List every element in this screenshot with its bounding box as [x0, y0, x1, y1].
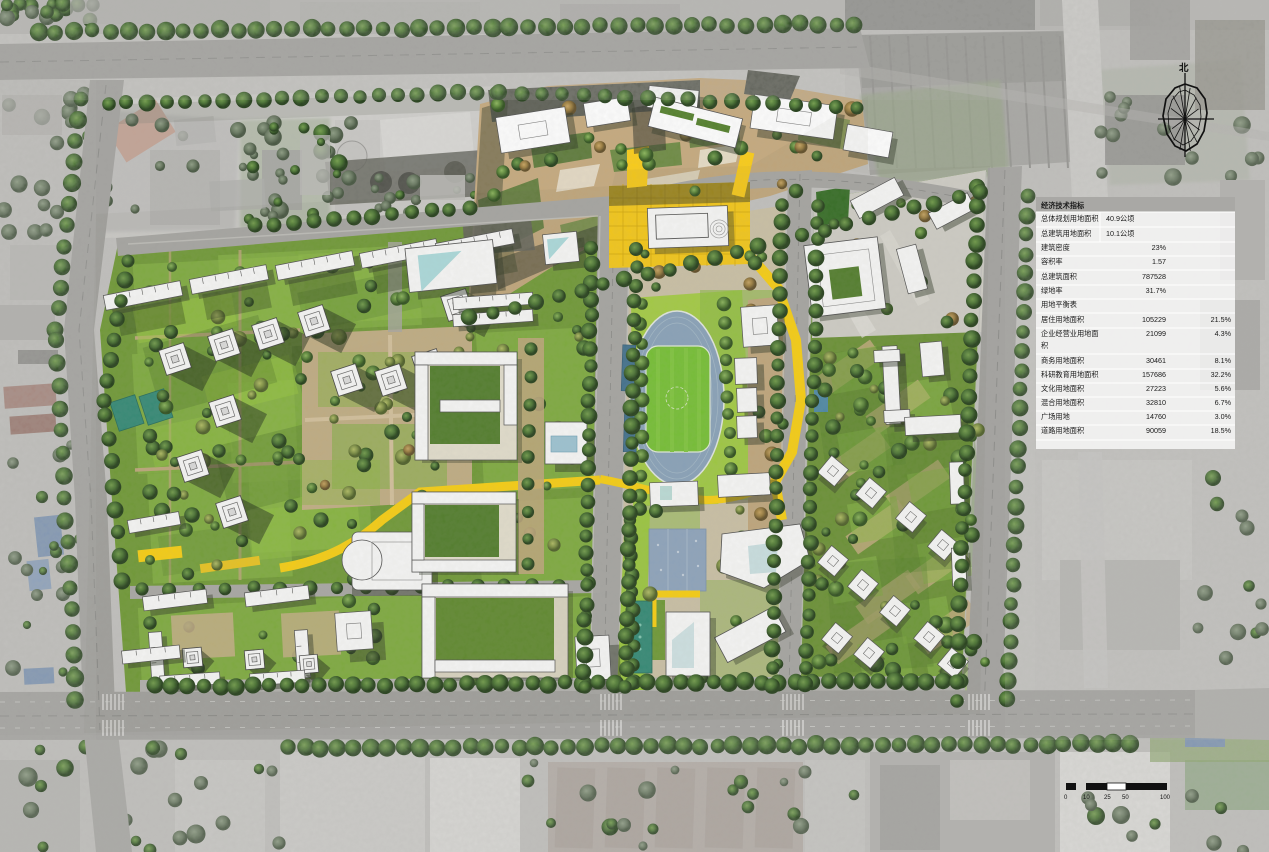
svg-text:科研教育用地面积: 科研教育用地面积	[1041, 370, 1099, 379]
svg-text:27223: 27223	[1146, 384, 1166, 393]
svg-text:混合用地面积: 混合用地面积	[1041, 398, 1084, 407]
svg-text:建筑密度: 建筑密度	[1041, 243, 1070, 252]
svg-text:总体规划用地面积: 总体规划用地面积	[1041, 214, 1099, 223]
svg-text:总建筑用地面积: 总建筑用地面积	[1041, 229, 1091, 238]
svg-text:10: 10	[1083, 795, 1090, 801]
svg-text:1.57: 1.57	[1152, 257, 1166, 266]
svg-text:绿地率: 绿地率	[1041, 286, 1063, 295]
svg-text:企业经营业用地面: 企业经营业用地面	[1041, 329, 1099, 338]
svg-text:道路用地面积: 道路用地面积	[1041, 426, 1084, 435]
svg-text:总建筑面积: 总建筑面积	[1041, 272, 1077, 281]
svg-text:23%: 23%	[1152, 243, 1167, 252]
svg-text:北: 北	[1179, 62, 1189, 74]
svg-text:6.7%: 6.7%	[1215, 398, 1232, 407]
svg-text:4.3%: 4.3%	[1215, 329, 1232, 338]
svg-text:32810: 32810	[1146, 398, 1166, 407]
svg-text:50: 50	[1122, 795, 1129, 801]
svg-text:32.2%: 32.2%	[1211, 370, 1232, 379]
svg-text:文化用地面积: 文化用地面积	[1041, 384, 1084, 393]
svg-text:100: 100	[1160, 795, 1171, 801]
svg-text:90059: 90059	[1146, 426, 1166, 435]
svg-text:居住用地面积: 居住用地面积	[1041, 315, 1084, 324]
svg-text:31.7%: 31.7%	[1146, 286, 1167, 295]
svg-text:3.0%: 3.0%	[1215, 412, 1232, 421]
svg-text:14760: 14760	[1146, 412, 1166, 421]
svg-text:容积率: 容积率	[1041, 257, 1063, 266]
svg-text:787528: 787528	[1142, 272, 1166, 281]
svg-text:经济技术指标: 经济技术指标	[1041, 201, 1085, 210]
svg-text:用地平衡表: 用地平衡表	[1041, 300, 1077, 309]
svg-text:18.5%: 18.5%	[1211, 426, 1232, 435]
svg-text:广场用地: 广场用地	[1041, 412, 1070, 421]
svg-text:8.1%: 8.1%	[1215, 356, 1232, 365]
svg-text:5.6%: 5.6%	[1215, 384, 1232, 393]
svg-text:10.1公顷: 10.1公顷	[1106, 229, 1134, 238]
svg-text:积: 积	[1041, 341, 1048, 350]
svg-text:21.5%: 21.5%	[1211, 315, 1232, 324]
svg-text:40.9公顷: 40.9公顷	[1106, 214, 1134, 223]
svg-text:商务用地面积: 商务用地面积	[1041, 356, 1084, 365]
svg-text:21099: 21099	[1146, 329, 1166, 338]
svg-text:105229: 105229	[1142, 315, 1166, 324]
svg-text:157686: 157686	[1142, 370, 1166, 379]
svg-text:30461: 30461	[1146, 356, 1166, 365]
svg-text:25: 25	[1104, 795, 1111, 801]
